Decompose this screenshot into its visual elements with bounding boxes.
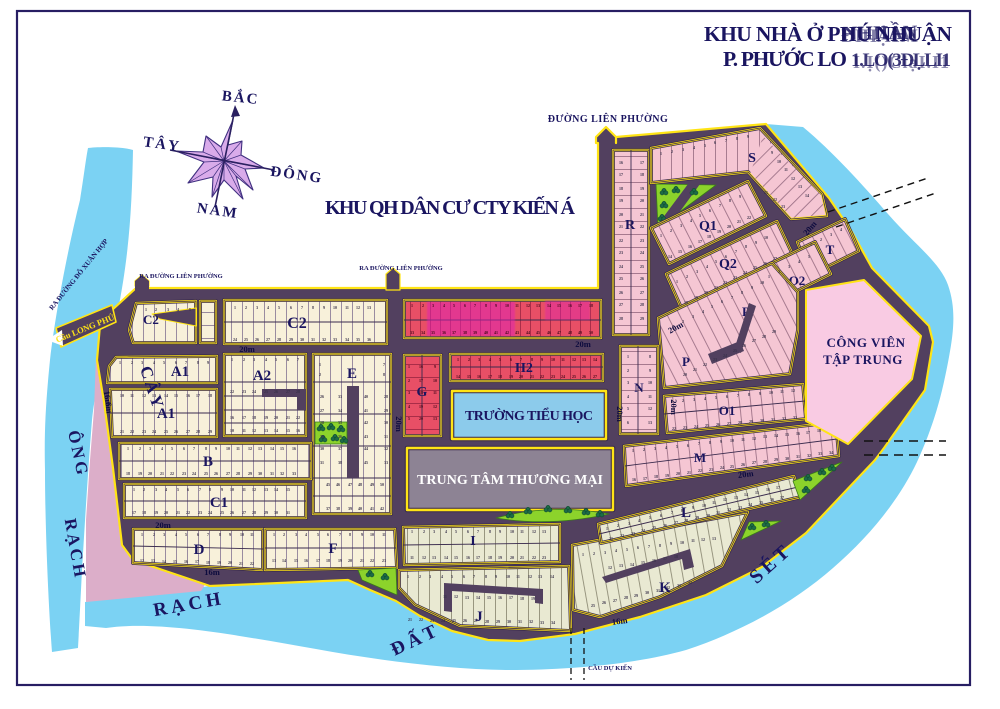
svg-text:40: 40 — [484, 330, 488, 335]
svg-text:3: 3 — [692, 314, 694, 319]
svg-text:33: 33 — [818, 451, 822, 456]
svg-text:15: 15 — [755, 490, 759, 495]
svg-text:32: 32 — [666, 585, 670, 590]
svg-text:22: 22 — [296, 415, 300, 420]
svg-text:12: 12 — [791, 176, 795, 181]
svg-text:1: 1 — [810, 242, 812, 247]
svg-text:6: 6 — [725, 254, 727, 259]
svg-text:8: 8 — [485, 574, 487, 579]
svg-text:14: 14 — [274, 487, 278, 492]
svg-text:25: 25 — [619, 276, 623, 281]
svg-text:5: 5 — [278, 305, 280, 310]
svg-text:10: 10 — [506, 574, 510, 579]
svg-text:20: 20 — [148, 471, 152, 476]
svg-text:6: 6 — [687, 443, 689, 448]
svg-text:15: 15 — [294, 558, 298, 563]
svg-text:20: 20 — [519, 374, 523, 379]
svg-text:18: 18 — [707, 234, 711, 239]
svg-text:13: 13 — [151, 558, 155, 563]
svg-text:7: 7 — [193, 446, 195, 451]
svg-text:21: 21 — [160, 471, 164, 476]
svg-text:6: 6 — [721, 299, 723, 304]
svg-text:12: 12 — [532, 529, 536, 534]
svg-text:25: 25 — [705, 423, 709, 428]
svg-text:4: 4 — [690, 218, 692, 223]
svg-text:13: 13 — [734, 495, 738, 500]
svg-text:50: 50 — [380, 482, 384, 487]
svg-text:17: 17 — [316, 558, 320, 563]
svg-text:17: 17 — [663, 556, 667, 561]
svg-text:22: 22 — [619, 238, 623, 243]
svg-text:25: 25 — [733, 348, 737, 353]
svg-text:14: 14 — [282, 558, 286, 563]
svg-text:5: 5 — [177, 487, 179, 492]
svg-text:16: 16 — [632, 477, 636, 482]
svg-text:8: 8 — [659, 543, 661, 548]
svg-text:C2: C2 — [143, 312, 159, 327]
svg-text:2: 2 — [319, 372, 321, 377]
svg-text:8: 8 — [729, 198, 731, 203]
svg-text:2: 2 — [422, 303, 424, 308]
svg-text:5: 5 — [189, 307, 191, 312]
svg-text:44: 44 — [526, 330, 530, 335]
svg-text:7: 7 — [735, 249, 737, 254]
svg-text:7: 7 — [725, 138, 727, 143]
svg-text:28: 28 — [320, 420, 324, 425]
svg-text:1: 1 — [582, 552, 584, 557]
svg-text:24: 24 — [720, 465, 724, 470]
svg-text:2: 2 — [627, 368, 629, 373]
svg-text:3: 3 — [788, 264, 790, 269]
svg-text:KHU QH DÂN CƯ CTY KIẾN Á: KHU QH DÂN CƯ CTY KIẾN Á — [325, 195, 576, 219]
svg-text:2: 2 — [155, 307, 157, 312]
svg-text:35: 35 — [356, 337, 360, 342]
svg-text:18: 18 — [640, 172, 644, 177]
svg-text:22: 22 — [170, 471, 174, 476]
svg-text:41: 41 — [364, 408, 368, 413]
svg-text:1: 1 — [457, 357, 459, 362]
svg-text:20: 20 — [727, 224, 731, 229]
svg-text:2: 2 — [617, 523, 619, 528]
svg-text:26: 26 — [274, 389, 278, 394]
svg-text:17: 17 — [242, 415, 246, 420]
svg-text:20: 20 — [683, 372, 687, 377]
svg-text:34: 34 — [421, 330, 425, 335]
svg-text:9: 9 — [771, 150, 773, 155]
svg-text:14: 14 — [774, 433, 778, 438]
svg-text:20: 20 — [164, 510, 168, 515]
svg-text:25: 25 — [220, 510, 224, 515]
svg-text:5: 5 — [163, 360, 165, 365]
svg-text:6: 6 — [183, 446, 185, 451]
svg-text:2: 2 — [423, 529, 425, 534]
svg-text:23: 23 — [733, 275, 737, 280]
svg-text:29: 29 — [634, 593, 638, 598]
svg-text:6: 6 — [463, 574, 465, 579]
svg-text:21: 21 — [764, 190, 768, 195]
svg-text:45: 45 — [326, 482, 330, 487]
svg-text:31: 31 — [320, 460, 324, 465]
svg-text:10: 10 — [764, 235, 768, 240]
svg-text:10: 10 — [370, 532, 374, 537]
svg-text:4: 4 — [627, 394, 629, 399]
svg-text:35: 35 — [431, 330, 435, 335]
svg-text:20m: 20m — [737, 468, 754, 480]
svg-text:31: 31 — [716, 510, 720, 515]
svg-text:43: 43 — [364, 434, 368, 439]
svg-text:28: 28 — [640, 302, 644, 307]
svg-text:49: 49 — [578, 330, 582, 335]
svg-text:11: 11 — [410, 555, 414, 560]
svg-text:18: 18 — [589, 303, 593, 308]
svg-text:18: 18 — [252, 415, 256, 420]
svg-text:28: 28 — [619, 316, 623, 321]
svg-text:8: 8 — [748, 392, 750, 397]
svg-text:4: 4 — [408, 404, 410, 409]
svg-text:16: 16 — [652, 558, 656, 563]
svg-text:10: 10 — [240, 532, 244, 537]
svg-text:16: 16 — [304, 558, 308, 563]
svg-text:26: 26 — [463, 618, 467, 623]
svg-text:9: 9 — [221, 487, 223, 492]
svg-text:33: 33 — [338, 394, 342, 399]
svg-text:12: 12 — [422, 555, 426, 560]
svg-text:17: 17 — [509, 595, 513, 600]
svg-text:3: 3 — [693, 397, 695, 402]
svg-text:Q1: Q1 — [699, 219, 717, 234]
svg-text:30: 30 — [645, 590, 649, 595]
svg-text:11: 11 — [784, 167, 788, 172]
svg-text:1: 1 — [660, 151, 662, 156]
svg-text:12: 12 — [454, 594, 458, 599]
svg-text:9: 9 — [649, 368, 651, 373]
svg-text:32: 32 — [529, 619, 533, 624]
svg-text:16: 16 — [477, 374, 481, 379]
svg-text:5: 5 — [711, 304, 713, 309]
svg-text:CÔNG VIÊN: CÔNG VIÊN — [826, 335, 905, 350]
svg-text:21: 21 — [176, 510, 180, 515]
svg-text:E: E — [347, 366, 357, 382]
svg-text:I.Ị()ClạI.I1: I.Ị()ClạI.I1 — [853, 52, 949, 73]
svg-text:18: 18 — [488, 555, 492, 560]
svg-text:31: 31 — [771, 417, 775, 422]
svg-text:4: 4 — [443, 303, 445, 308]
svg-text:1: 1 — [676, 279, 678, 284]
svg-text:1: 1 — [273, 532, 275, 537]
svg-text:36: 36 — [367, 337, 371, 342]
svg-text:16m: 16m — [204, 567, 220, 577]
svg-text:8: 8 — [709, 440, 711, 445]
svg-text:11: 11 — [516, 574, 520, 579]
svg-text:2: 2 — [468, 357, 470, 362]
svg-text:16m: 16m — [611, 615, 628, 627]
svg-text:6: 6 — [175, 360, 177, 365]
svg-text:15: 15 — [467, 374, 471, 379]
svg-text:24: 24 — [694, 424, 698, 429]
svg-text:16: 16 — [498, 595, 502, 600]
svg-text:38: 38 — [336, 506, 340, 511]
svg-text:34: 34 — [748, 502, 752, 507]
svg-text:27: 27 — [474, 618, 478, 623]
svg-text:25: 25 — [572, 374, 576, 379]
svg-text:22: 22 — [698, 468, 702, 473]
svg-text:4: 4 — [693, 145, 695, 150]
svg-text:21: 21 — [286, 415, 290, 420]
svg-text:10: 10 — [702, 503, 706, 508]
svg-text:7: 7 — [301, 305, 303, 310]
svg-text:8: 8 — [649, 354, 651, 359]
svg-text:1: 1 — [408, 364, 410, 369]
svg-text:29: 29 — [264, 510, 268, 515]
svg-text:27: 27 — [286, 389, 290, 394]
svg-text:19: 19 — [419, 404, 423, 409]
svg-text:37: 37 — [338, 446, 342, 451]
svg-text:19: 19 — [619, 198, 623, 203]
svg-text:5: 5 — [649, 515, 651, 520]
svg-text:37: 37 — [326, 506, 330, 511]
svg-text:3: 3 — [432, 303, 434, 308]
svg-text:31: 31 — [311, 337, 315, 342]
svg-text:7: 7 — [737, 393, 739, 398]
svg-text:9: 9 — [747, 134, 749, 139]
svg-text:23: 23 — [198, 510, 202, 515]
svg-text:11: 11 — [382, 532, 386, 537]
svg-text:14: 14 — [270, 446, 274, 451]
svg-text:13: 13 — [798, 184, 802, 189]
svg-text:32: 32 — [322, 337, 326, 342]
svg-text:5: 5 — [275, 357, 277, 362]
svg-text:1: 1 — [234, 305, 236, 310]
svg-text:7: 7 — [698, 441, 700, 446]
svg-text:11: 11 — [780, 389, 784, 394]
svg-text:N: N — [634, 380, 644, 395]
svg-text:27: 27 — [186, 429, 190, 434]
svg-text:10: 10 — [769, 390, 773, 395]
svg-text:48: 48 — [358, 482, 362, 487]
svg-text:50: 50 — [589, 330, 593, 335]
svg-text:24: 24 — [640, 250, 644, 255]
svg-text:39: 39 — [473, 330, 477, 335]
svg-text:O1: O1 — [719, 403, 736, 418]
svg-text:19: 19 — [531, 596, 535, 601]
svg-text:28: 28 — [296, 389, 300, 394]
svg-text:25: 25 — [264, 389, 268, 394]
svg-text:F: F — [328, 541, 337, 557]
svg-text:14: 14 — [162, 559, 166, 564]
svg-text:16: 16 — [619, 160, 623, 165]
svg-text:20: 20 — [704, 290, 708, 295]
svg-text:23: 23 — [640, 238, 644, 243]
svg-text:9: 9 — [541, 357, 543, 362]
svg-text:5: 5 — [185, 532, 187, 537]
svg-text:26: 26 — [582, 374, 586, 379]
svg-text:11: 11 — [648, 394, 652, 399]
svg-text:P. PHƯỚC LO: P. PHƯỚC LO — [723, 47, 847, 71]
svg-text:13: 13 — [432, 555, 436, 560]
svg-text:28: 28 — [196, 429, 200, 434]
svg-text:28: 28 — [252, 510, 256, 515]
svg-text:12: 12 — [723, 497, 727, 502]
svg-text:12: 12 — [252, 428, 256, 433]
svg-text:5: 5 — [808, 254, 810, 259]
svg-text:5: 5 — [704, 143, 706, 148]
svg-text:B: B — [203, 454, 213, 470]
svg-text:23: 23 — [781, 204, 785, 209]
svg-text:33: 33 — [333, 337, 337, 342]
svg-text:4: 4 — [445, 529, 447, 534]
svg-text:19: 19 — [509, 374, 513, 379]
svg-text:24: 24 — [192, 471, 196, 476]
svg-text:7: 7 — [297, 357, 299, 362]
svg-text:41: 41 — [494, 330, 498, 335]
svg-text:25: 25 — [652, 525, 656, 530]
svg-text:25: 25 — [204, 471, 208, 476]
svg-text:10: 10 — [551, 357, 555, 362]
svg-text:RA ĐƯỜNG LIÊN PHƯỜNG: RA ĐƯỜNG LIÊN PHƯỜNG — [359, 264, 442, 272]
svg-text:11: 11 — [433, 390, 437, 395]
svg-text:19: 19 — [264, 415, 268, 420]
svg-text:9: 9 — [739, 194, 741, 199]
svg-text:7: 7 — [185, 360, 187, 365]
svg-text:21: 21 — [693, 367, 697, 372]
svg-text:30: 30 — [300, 337, 304, 342]
svg-text:4: 4 — [267, 305, 269, 310]
svg-text:6: 6 — [467, 529, 469, 534]
svg-text:8: 8 — [383, 372, 385, 377]
svg-text:19: 19 — [665, 473, 669, 478]
svg-text:7: 7 — [731, 295, 733, 300]
svg-text:1: 1 — [606, 526, 608, 531]
svg-text:18: 18 — [674, 554, 678, 559]
svg-text:13: 13 — [536, 303, 540, 308]
svg-text:25: 25 — [730, 464, 734, 469]
svg-text:8: 8 — [681, 508, 683, 513]
svg-text:18: 18 — [142, 510, 146, 515]
svg-text:7: 7 — [207, 532, 209, 537]
svg-text:32: 32 — [384, 446, 388, 451]
svg-text:27: 27 — [773, 256, 777, 261]
svg-text:20: 20 — [274, 415, 278, 420]
svg-text:27: 27 — [613, 598, 617, 603]
svg-text:10: 10 — [505, 303, 509, 308]
svg-text:9: 9 — [692, 505, 694, 510]
svg-text:5: 5 — [408, 416, 410, 421]
svg-text:11: 11 — [712, 500, 716, 505]
svg-text:27: 27 — [619, 302, 623, 307]
svg-text:31: 31 — [518, 619, 522, 624]
svg-text:8: 8 — [219, 532, 221, 537]
svg-text:30: 30 — [706, 513, 710, 518]
svg-text:2: 2 — [820, 237, 822, 242]
svg-text:12: 12 — [648, 406, 652, 411]
svg-text:17: 17 — [643, 476, 647, 481]
svg-text:15: 15 — [286, 428, 290, 433]
svg-text:15: 15 — [286, 487, 290, 492]
svg-text:29: 29 — [496, 619, 500, 624]
svg-text:8: 8 — [741, 290, 743, 295]
svg-text:2: 2 — [670, 228, 672, 233]
svg-text:6: 6 — [660, 513, 662, 518]
svg-text:12: 12 — [528, 574, 532, 579]
svg-text:8: 8 — [745, 244, 747, 249]
svg-text:RA ĐƯỜNG LIÊN PHƯỜNG: RA ĐƯỜNG LIÊN PHƯỜNG — [139, 272, 222, 280]
svg-text:15: 15 — [174, 393, 178, 398]
svg-text:14: 14 — [550, 574, 554, 579]
svg-text:22: 22 — [250, 561, 254, 566]
svg-text:15: 15 — [641, 560, 645, 565]
svg-text:21: 21 — [120, 429, 124, 434]
svg-text:25: 25 — [753, 265, 757, 270]
svg-text:23: 23 — [182, 471, 186, 476]
svg-text:3: 3 — [830, 232, 832, 237]
svg-text:24: 24 — [208, 510, 212, 515]
svg-text:34: 34 — [338, 408, 342, 413]
svg-text:A1: A1 — [171, 364, 189, 380]
svg-text:9: 9 — [751, 285, 753, 290]
svg-text:20: 20 — [676, 471, 680, 476]
svg-text:5: 5 — [171, 446, 173, 451]
svg-text:14: 14 — [547, 303, 551, 308]
svg-text:6: 6 — [327, 532, 329, 537]
svg-text:23: 23 — [683, 425, 687, 430]
svg-text:37: 37 — [452, 330, 456, 335]
svg-text:1: 1 — [411, 529, 413, 534]
svg-text:8: 8 — [485, 303, 487, 308]
svg-text:33: 33 — [384, 460, 388, 465]
svg-text:6: 6 — [464, 303, 466, 308]
svg-text:4: 4 — [704, 396, 706, 401]
svg-text:6: 6 — [714, 140, 716, 145]
svg-text:6: 6 — [287, 357, 289, 362]
svg-text:15: 15 — [173, 559, 177, 564]
svg-text:45: 45 — [536, 330, 540, 335]
svg-text:5: 5 — [715, 259, 717, 264]
svg-text:3: 3 — [149, 446, 151, 451]
svg-text:16: 16 — [766, 487, 770, 492]
svg-text:27: 27 — [320, 408, 324, 413]
svg-text:13: 13 — [538, 574, 542, 579]
svg-text:46: 46 — [336, 482, 340, 487]
svg-text:2: 2 — [419, 574, 421, 579]
svg-text:12: 12 — [433, 404, 437, 409]
svg-text:29: 29 — [640, 316, 644, 321]
svg-text:27: 27 — [593, 374, 597, 379]
svg-text:13: 13 — [712, 536, 716, 541]
svg-text:3: 3 — [696, 269, 698, 274]
svg-text:28: 28 — [684, 518, 688, 523]
svg-text:27: 27 — [242, 510, 246, 515]
svg-text:6: 6 — [709, 208, 711, 213]
svg-text:16: 16 — [230, 415, 234, 420]
svg-text:40: 40 — [358, 506, 362, 511]
svg-text:8: 8 — [205, 446, 207, 451]
svg-text:20: 20 — [510, 555, 514, 560]
svg-text:13: 13 — [264, 428, 268, 433]
svg-text:33: 33 — [793, 415, 797, 420]
svg-text:19: 19 — [640, 186, 644, 191]
svg-text:28: 28 — [384, 394, 388, 399]
svg-text:17: 17 — [195, 559, 199, 564]
svg-text:24: 24 — [233, 337, 237, 342]
svg-text:33: 33 — [540, 620, 544, 625]
svg-text:Q2: Q2 — [719, 257, 737, 272]
svg-text:47: 47 — [348, 482, 352, 487]
svg-text:12: 12 — [572, 357, 576, 362]
svg-text:13: 13 — [465, 595, 469, 600]
svg-text:24: 24 — [619, 264, 623, 269]
svg-text:12: 12 — [248, 446, 252, 451]
svg-text:42: 42 — [380, 506, 384, 511]
